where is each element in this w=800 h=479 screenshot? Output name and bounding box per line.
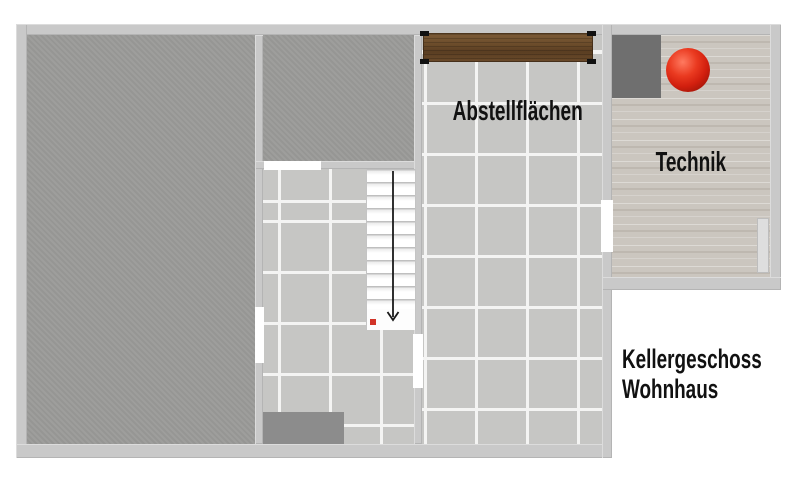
room-cellar-middle-top <box>263 35 414 161</box>
wall-outer-left <box>16 24 27 458</box>
wood-grain <box>424 34 592 61</box>
technik-right-wall-door <box>757 218 769 273</box>
floor-mat <box>263 412 344 444</box>
shelf-foot <box>587 59 596 64</box>
label-storage-room: Abstellflächen <box>422 96 602 126</box>
floor-plan: Abstellflächen Technik Kellergeschoss Wo… <box>0 0 800 479</box>
staircase <box>366 169 416 330</box>
stair-start-marker-icon <box>370 319 376 325</box>
room-cellar-left <box>27 35 255 444</box>
technical-unit <box>612 35 661 98</box>
wall-outer-technik-right <box>770 24 781 290</box>
door-opening-storage <box>413 334 423 388</box>
stair-direction-arrow-icon <box>386 171 400 326</box>
door-opening-left-room <box>255 307 264 363</box>
wall-outer-bottom <box>16 444 612 458</box>
door-opening-technik <box>601 200 613 252</box>
shelf-foot <box>420 59 429 64</box>
door-opening-middle-room <box>264 161 321 170</box>
wood-shelf <box>423 33 593 62</box>
expansion-tank-icon <box>666 48 710 92</box>
plan-title-line1: Kellergeschoss <box>622 344 762 374</box>
wall-outer-technik-bottom <box>602 277 781 290</box>
shelf-foot <box>420 31 429 36</box>
wall-outer-top <box>16 24 781 35</box>
plan-title: Kellergeschoss Wohnhaus <box>622 344 800 404</box>
wall-inner-left-room <box>255 35 263 444</box>
label-technik-room: Technik <box>612 147 770 177</box>
plan-title-line2: Wohnhaus <box>622 374 718 404</box>
shelf-foot <box>587 31 596 36</box>
